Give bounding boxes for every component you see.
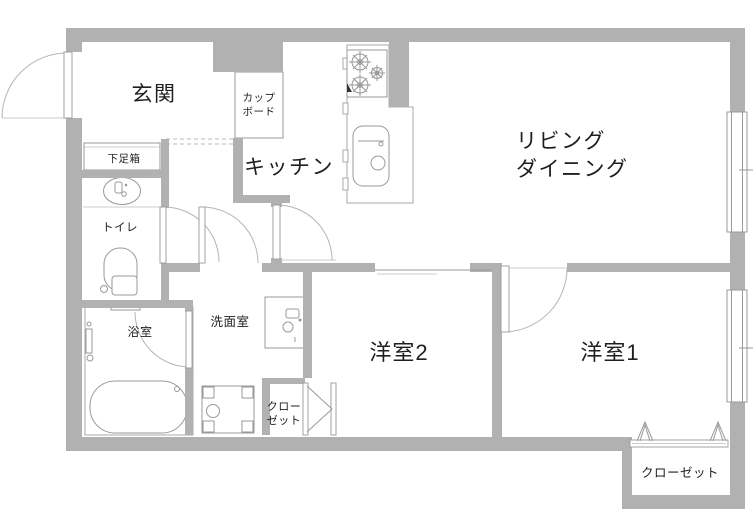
floor-plan-canvas: 玄関 カップ ボード キッチン リビング ダイニング 下足箱 トイレ 浴室 洗面… xyxy=(0,0,755,530)
counter-handle xyxy=(343,103,348,114)
room1-window xyxy=(727,290,753,402)
label-closet2-1: クロー xyxy=(267,400,302,413)
wall-closet1-bottom xyxy=(622,495,745,509)
toilet-door xyxy=(160,207,166,263)
wall-right-lower xyxy=(730,402,745,509)
wall-stove-stub xyxy=(389,42,409,107)
wall-right-mid xyxy=(730,232,745,290)
entrance-door-arc xyxy=(2,53,67,118)
label-cupboard-1: カップ xyxy=(243,92,276,104)
kitchen-door-arc xyxy=(277,205,332,260)
bathroom-door xyxy=(186,311,192,368)
wall-bath-north xyxy=(66,300,193,308)
washroom-door xyxy=(199,207,205,263)
label-kitchen: キッチン xyxy=(244,156,334,179)
wall-left-upper xyxy=(66,28,82,52)
wall-closet2-top xyxy=(262,378,305,384)
genkan-fixtures xyxy=(84,139,233,170)
wall-left xyxy=(66,118,82,451)
entrance-door xyxy=(64,52,72,118)
wall-toilet-east-upper xyxy=(161,139,169,208)
wall-right-upper xyxy=(730,28,745,112)
wall-top xyxy=(66,28,745,42)
room1-door-arc xyxy=(505,268,567,332)
wall-living-south xyxy=(567,263,730,272)
wall-room2-west xyxy=(303,270,312,378)
label-living-2: ダイニング xyxy=(516,158,629,181)
toilet-fixtures xyxy=(83,178,161,296)
folding-door-marks xyxy=(637,422,726,441)
label-shoebox: 下足箱 xyxy=(108,152,141,165)
floor-plan: 玄関 カップ ボード キッチン リビング ダイニング 下足箱 トイレ 浴室 洗面… xyxy=(0,0,755,530)
label-room1: 洋室1 xyxy=(580,340,639,365)
wall-hall-south-a xyxy=(161,263,200,272)
gas-stove-icon xyxy=(347,50,387,97)
toilet-door-arc xyxy=(164,207,219,262)
label-closet2-2: ゼット xyxy=(267,414,302,427)
wall-entrance-block xyxy=(213,28,283,72)
counter-handle xyxy=(343,150,348,162)
room1-door xyxy=(501,266,509,332)
label-washroom: 洗面室 xyxy=(210,314,249,329)
label-cupboard-2: ボード xyxy=(243,106,276,118)
kitchen-door xyxy=(273,205,280,259)
bifold-closet-door xyxy=(307,386,332,432)
label-toilet: トイレ xyxy=(102,222,138,234)
washing-machine-pan-icon xyxy=(202,386,254,433)
label-genkan: 玄関 xyxy=(132,83,177,106)
toilet-tank-icon xyxy=(112,276,137,295)
wall-living-south-stub xyxy=(470,263,502,272)
bathroom-fixtures xyxy=(85,303,193,435)
kitchen-sink-icon xyxy=(353,126,389,186)
wall-bottom xyxy=(66,437,622,451)
wall-bath-east-upper xyxy=(185,300,193,312)
bathtub-icon xyxy=(90,381,187,433)
wall-room1-room2 xyxy=(492,263,502,437)
living-window xyxy=(727,112,753,232)
wall-hall-south-b xyxy=(262,263,375,272)
label-room2: 洋室2 xyxy=(369,340,428,365)
label-living-1: リビング xyxy=(516,130,606,153)
toilet-lever-icon xyxy=(101,286,108,293)
wall-kitchen-south xyxy=(233,195,290,203)
washroom-door-arc xyxy=(202,207,258,263)
wall-bath-east-lower xyxy=(185,367,193,435)
counter-handle xyxy=(343,178,348,190)
label-bathroom: 浴室 xyxy=(127,324,152,339)
wall-shoebox-toilet xyxy=(82,170,162,178)
bifold-track xyxy=(303,383,308,435)
cupboard xyxy=(235,72,283,138)
wall-kitchen-west xyxy=(233,138,243,195)
label-closet1: クローゼット xyxy=(641,466,719,480)
